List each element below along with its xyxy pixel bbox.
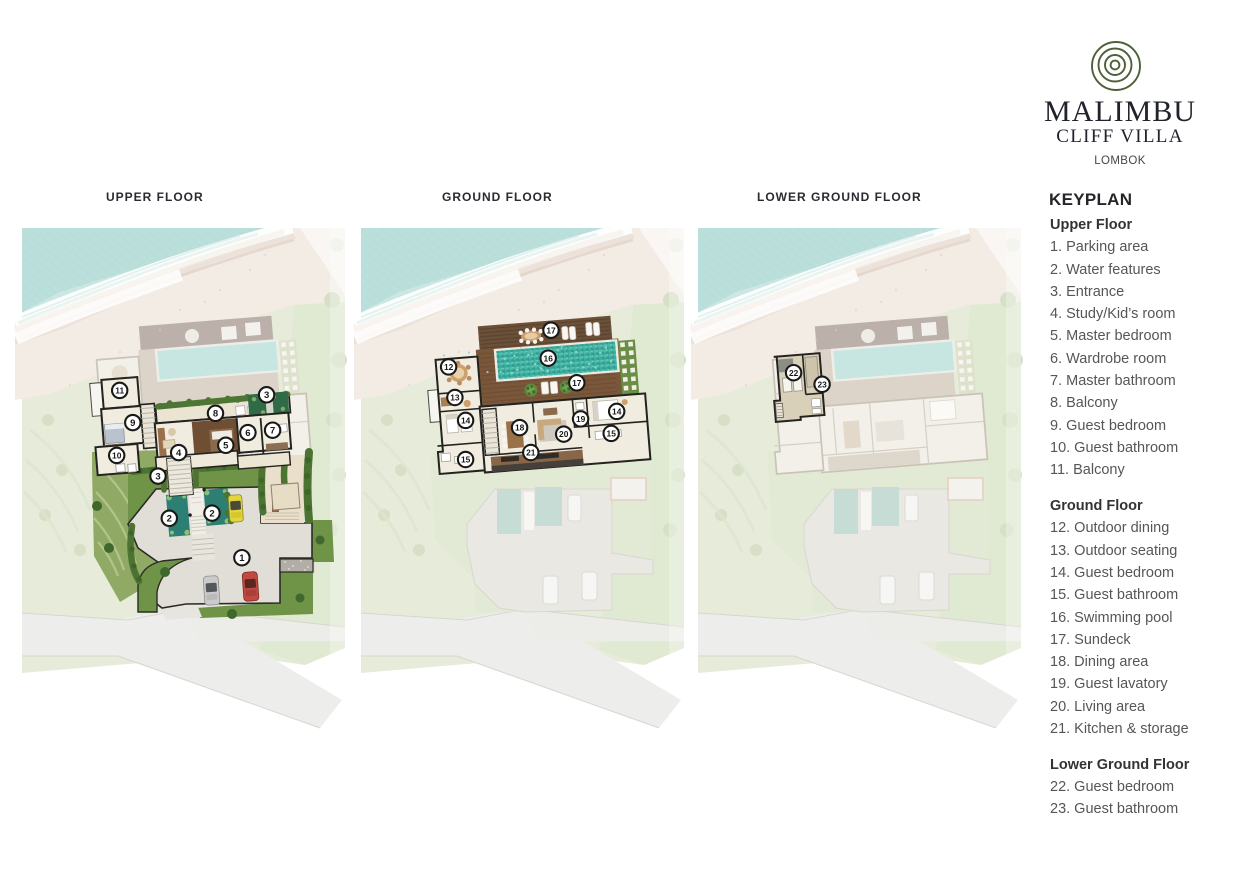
svg-text:14: 14 [461, 416, 471, 426]
svg-text:1: 1 [239, 553, 245, 564]
svg-text:11: 11 [115, 386, 124, 396]
svg-text:9: 9 [130, 418, 135, 429]
svg-text:13: 13 [450, 393, 460, 403]
svg-text:5: 5 [223, 441, 229, 452]
svg-text:18: 18 [515, 423, 525, 433]
svg-text:4: 4 [176, 448, 182, 459]
svg-text:15: 15 [607, 429, 617, 439]
svg-text:2: 2 [209, 508, 214, 519]
svg-text:12: 12 [444, 362, 454, 372]
svg-text:3: 3 [155, 472, 160, 483]
svg-text:2: 2 [167, 514, 172, 525]
svg-text:16: 16 [544, 353, 554, 363]
svg-text:8: 8 [213, 409, 218, 420]
svg-text:17: 17 [572, 378, 582, 388]
svg-text:17: 17 [546, 325, 556, 335]
svg-text:21: 21 [526, 448, 536, 458]
svg-text:3: 3 [264, 390, 269, 401]
svg-text:6: 6 [245, 428, 250, 439]
svg-text:20: 20 [559, 429, 569, 439]
svg-text:19: 19 [576, 414, 586, 424]
svg-text:14: 14 [612, 407, 622, 417]
svg-text:7: 7 [270, 426, 275, 437]
svg-text:15: 15 [461, 455, 471, 465]
svg-text:22: 22 [789, 368, 799, 378]
svg-text:23: 23 [817, 379, 827, 389]
svg-text:10: 10 [112, 451, 122, 461]
